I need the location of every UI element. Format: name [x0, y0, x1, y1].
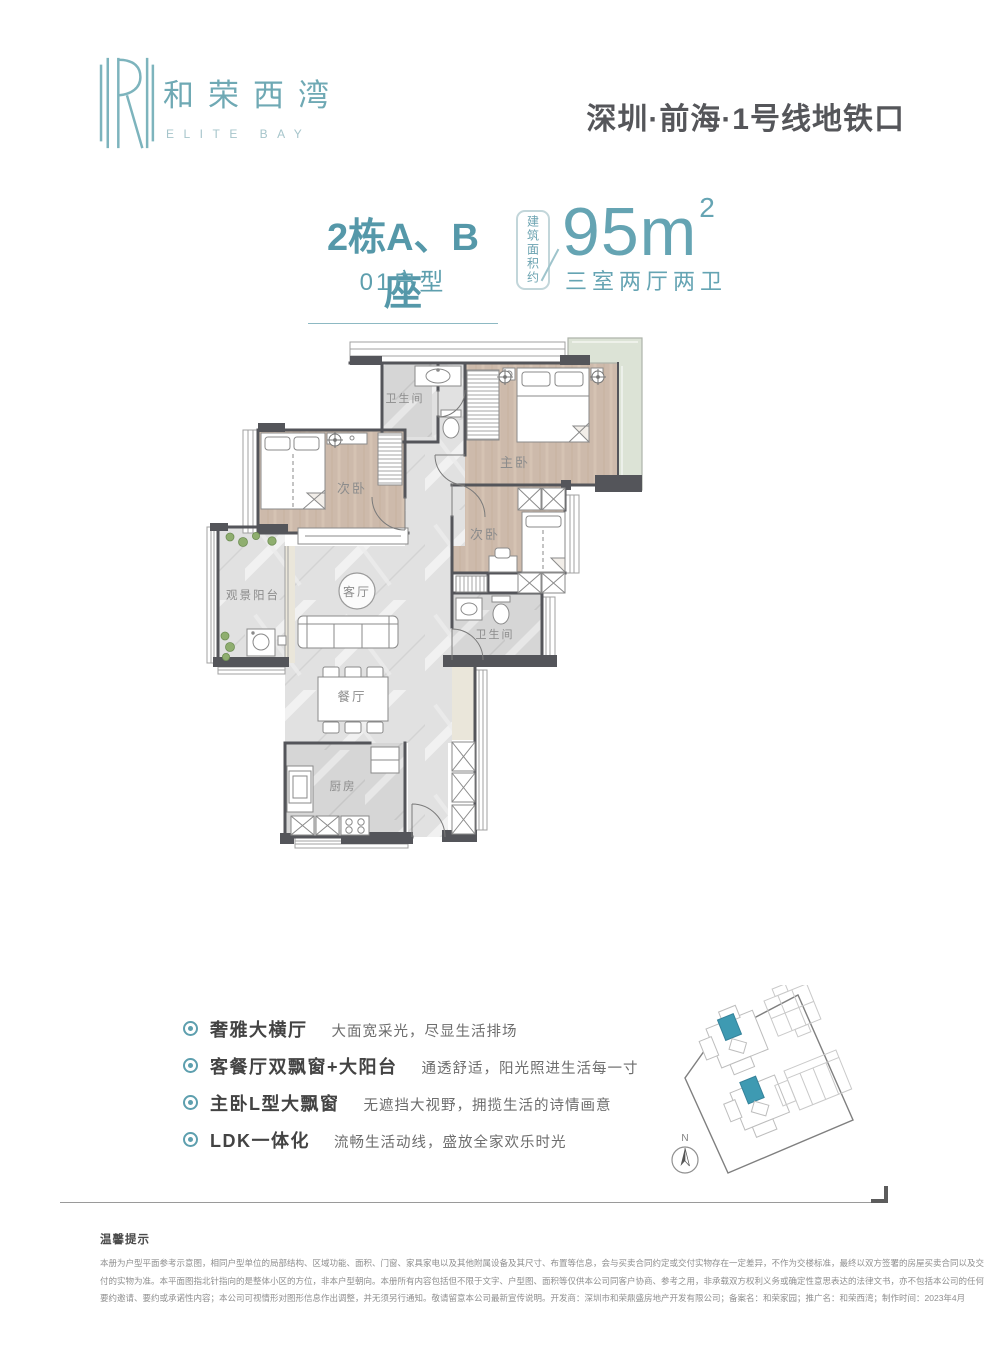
area-superscript: 2 [699, 192, 716, 223]
feature-desc: 大面宽采光，尽显生活排场 [332, 1020, 518, 1041]
feature-desc: 无遮挡大视野，拥揽生活的诗情画意 [364, 1094, 612, 1115]
feature-item: 客餐厅双飘窗+大阳台 通透舒适，阳光照进生活每一寸 [183, 1053, 639, 1074]
feature-title: 客餐厅双飘窗+大阳台 [210, 1053, 398, 1079]
bullet-icon [183, 1058, 198, 1073]
compass-icon: N [672, 1133, 698, 1173]
unit-type: 01户型 [308, 262, 498, 297]
siteplan-map: N [648, 985, 888, 1200]
building-cluster-outline-d [771, 1050, 852, 1115]
disclaimer-line: 要约邀请、要约或承诺性内容；本公司可视情形对图形信息作出调整，并无须另行通知。敬… [100, 1290, 984, 1308]
bullet-icon [183, 1095, 198, 1110]
stove [341, 816, 369, 835]
brand-logo-icon [97, 55, 155, 151]
area-number: 95m [562, 194, 697, 270]
feature-item: 主卧L型大飘窗 无遮挡大视野，拥揽生活的诗情画意 [183, 1090, 639, 1111]
corner-bracket [871, 1199, 888, 1203]
label-living-room: 客厅 [343, 584, 371, 599]
building-cluster-highlight-b [718, 1069, 793, 1144]
area-value: 95m2 [562, 192, 716, 271]
label-dining-room: 餐厅 [337, 689, 366, 704]
poster-page: 和荣西湾 ELITE BAY 深圳·前海·1号线地铁口 2栋A、B座 01户型 … [0, 0, 1000, 1357]
label-kitchen: 厨房 [330, 780, 357, 793]
label-bathroom-bottom: 卫生间 [476, 627, 515, 641]
feature-desc: 通透舒适，阳光照进生活每一寸 [422, 1057, 639, 1078]
disclaimer-title: 温馨提示 [100, 1231, 984, 1247]
feature-title: 主卧L型大飘窗 [210, 1090, 340, 1116]
label-bedroom-left: 次卧 [337, 481, 367, 496]
brand-name-en: ELITE BAY [163, 127, 343, 141]
washer [247, 629, 275, 656]
label-master-bedroom: 主卧 [500, 455, 530, 470]
disclaimer-block: 温馨提示 本册为户型平面参考示意图，相同户型单位的局部结构、区域功能、面积、门窗… [100, 1231, 984, 1308]
building-cluster-highlight-a [692, 1000, 773, 1082]
features-list: 奢雅大横厅 大面宽采光，尽显生活排场 客餐厅双飘窗+大阳台 通透舒适，阳光照进生… [183, 1016, 639, 1164]
location-headline: 深圳·前海·1号线地铁口 [586, 94, 905, 138]
rooms-summary: 三室两厅两卫 [565, 264, 727, 296]
area-note-label: 建筑面积约 [525, 215, 542, 285]
feature-title: 奢雅大横厅 [210, 1016, 308, 1042]
bullet-icon [183, 1021, 198, 1036]
disclaimer-line: 付的实物为准。本平面图指北针指向的是整体小区的方位，非本户型朝向。本册所有内容包… [100, 1273, 984, 1291]
disclaimer-line: 本册为户型平面参考示意图，相同户型单位的局部结构、区域功能、面积、门窗、家具家电… [100, 1255, 984, 1273]
feature-desc: 流畅生活动线，盛放全家欢乐时光 [334, 1131, 567, 1152]
building-cluster-outline-c [761, 985, 824, 1044]
brand-logo-text: 和荣西湾 ELITE BAY [163, 70, 343, 141]
feature-item: LDK一体化 流畅生活动线，盛放全家欢乐时光 [183, 1127, 639, 1148]
sofa [298, 616, 398, 648]
label-bathroom-top: 卫生间 [386, 391, 425, 405]
bullet-icon [183, 1132, 198, 1147]
compass-label: N [681, 1133, 688, 1144]
label-view-balcony: 观景阳台 [226, 588, 280, 602]
floorplan-drawing: 卫生间 主卧 次卧 次卧 观景阳台 客厅 餐厅 厨房 卫生间 [155, 330, 745, 990]
brand-name-cn: 和荣西湾 [163, 70, 343, 115]
area-note-badge: 建筑面积约 [516, 210, 550, 290]
feature-title: LDK一体化 [210, 1127, 310, 1153]
label-bedroom-right: 次卧 [470, 527, 500, 542]
feature-item: 奢雅大横厅 大面宽采光，尽显生活排场 [183, 1016, 639, 1037]
divider-line [60, 1202, 872, 1203]
